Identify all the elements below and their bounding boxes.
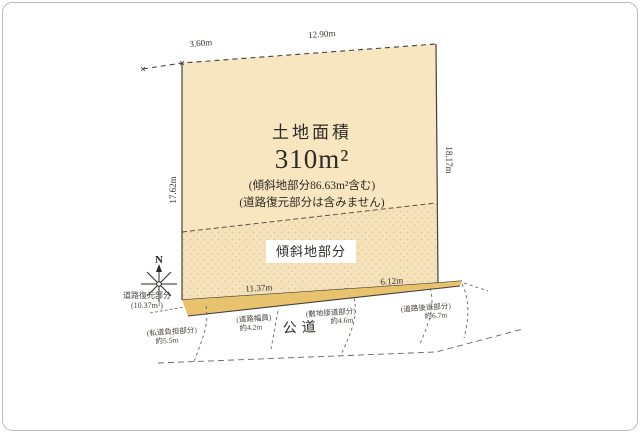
public-road-label: 公道 — [282, 319, 321, 337]
dim-bottom-right: 6.12m — [380, 275, 403, 287]
road-restoration-area: (10.37m²) — [131, 301, 163, 310]
dim-top-left: 3.60m — [189, 37, 213, 49]
road-label-2-line2: 約4.2m — [239, 321, 263, 333]
road-label-1-line2: 約5.5m — [155, 334, 179, 346]
dim-bottom-left: 11.37m — [245, 282, 272, 293]
land-area-title: 土地面積 — [272, 123, 352, 142]
road-label-3-line2: 約4.6m — [330, 314, 354, 326]
plot-drawing: 土地面積 310m² (傾斜地部分86.63m²含む) (道路復元部分は含みませ… — [0, 0, 640, 433]
road-label-4-line2: 約6.7m — [424, 309, 448, 321]
land-area-value: 310m² — [275, 144, 350, 174]
road-restoration-note: (道路復元部分は含みません) — [239, 195, 384, 209]
dim-left: 17.62m — [168, 176, 178, 203]
slope-area-note: (傾斜地部分86.63m²含む) — [249, 178, 376, 192]
road-restoration-label: 道路復元部分 — [123, 290, 171, 300]
land-plot-diagram: 土地面積 310m² (傾斜地部分86.63m²含む) (道路復元部分は含みませ… — [0, 0, 640, 433]
slope-label: 傾斜地部分 — [276, 244, 346, 259]
dim-right: 18.17m — [444, 146, 454, 173]
dim-top: 12.90m — [308, 28, 336, 40]
